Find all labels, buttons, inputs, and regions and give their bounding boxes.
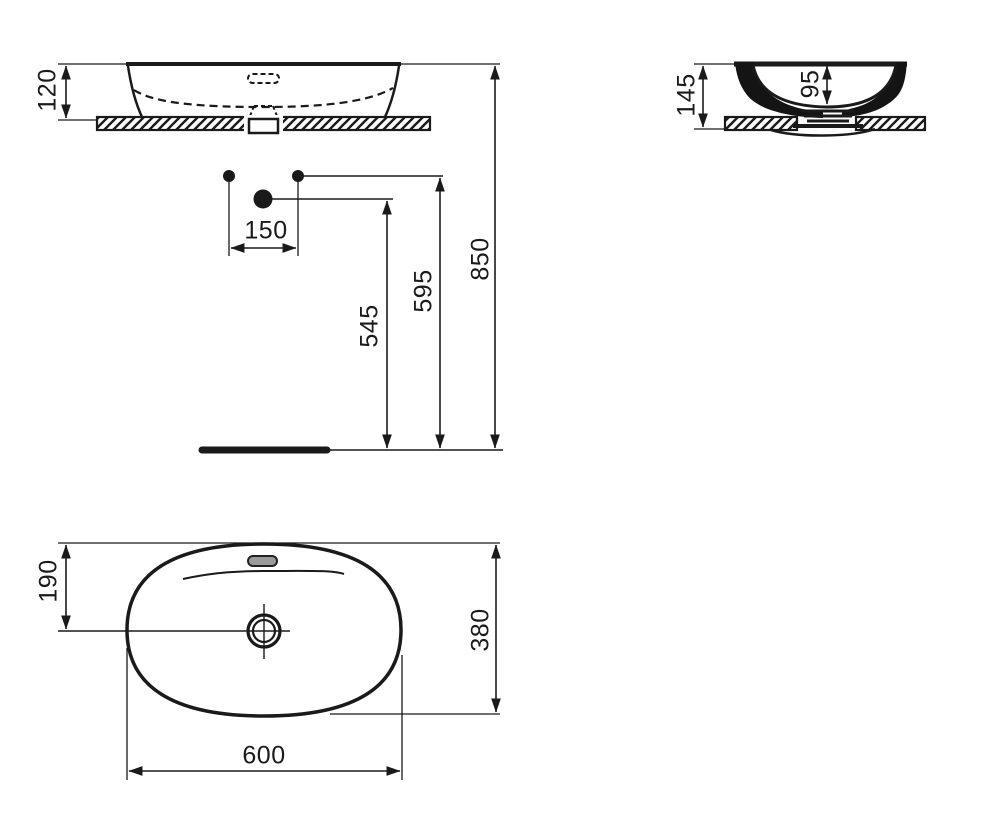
dim-label-basin-height: 120	[36, 68, 61, 111]
inner-rim-curve	[183, 571, 344, 579]
drawing-linework	[0, 0, 994, 830]
countertop-section	[725, 117, 925, 130]
dim-label-tap-spacing: 150	[244, 219, 287, 244]
dim-label-overall-width: 600	[242, 744, 285, 769]
front-elevation-view	[58, 64, 503, 450]
dim-label-drain-height: 545	[358, 304, 383, 347]
basin-outline	[126, 64, 401, 117]
drain-through-counter	[249, 119, 278, 133]
hidden-bowl-line	[134, 88, 393, 107]
dim-label-bowl-depth: 95	[799, 70, 824, 99]
dim-label-overall-height: 145	[675, 73, 700, 116]
dim-label-tap-height: 595	[412, 269, 437, 312]
overflow-slot	[248, 556, 277, 566]
technical-drawing-canvas: 120 150 545 595 850 145 95 190 380 600	[0, 0, 994, 830]
dim-label-overall-depth: 380	[469, 608, 494, 651]
dim-label-drain-offset: 190	[37, 559, 62, 602]
tap-hole-dot-left	[223, 170, 235, 182]
tap-hole-markers	[223, 170, 304, 209]
drain-symbol	[248, 604, 280, 659]
hidden-overflow-slot	[248, 74, 279, 83]
dim-label-rim-height: 850	[469, 237, 494, 280]
countertop-section	[97, 115, 430, 133]
